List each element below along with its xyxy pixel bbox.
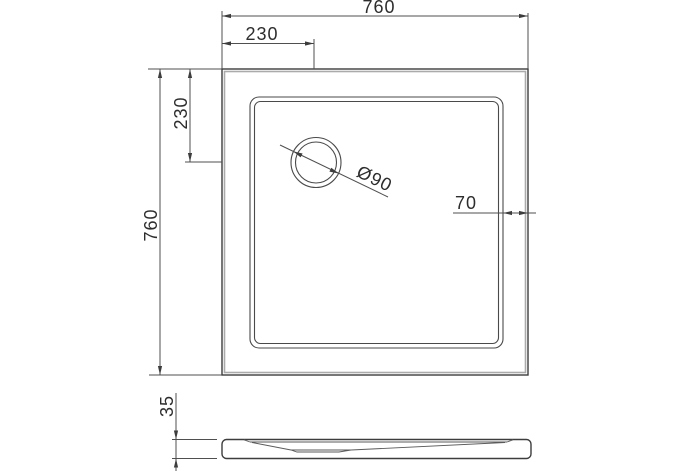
- plan-view: [222, 69, 528, 375]
- dim-label-drain-offset-x: 230: [245, 24, 278, 44]
- arrowhead-top: [188, 69, 192, 78]
- arrowhead-bottom: [188, 153, 192, 162]
- profile-floor-slope-right: [351, 443, 505, 451]
- tray-rim-inner-line: [255, 102, 499, 344]
- shower-tray-technical-drawing: 760 230 760 230: [0, 0, 675, 476]
- dim-tray-depth: 35: [157, 393, 217, 471]
- dim-rim-width: 70: [453, 193, 536, 215]
- dim-label-drain-offset-y: 230: [171, 96, 191, 129]
- dim-top-drain-offset: 230: [222, 24, 314, 69]
- arrowhead-bottom: [174, 459, 178, 468]
- arrowhead-right: [519, 14, 528, 18]
- arrowhead-top: [158, 69, 162, 78]
- arrowhead-left: [503, 211, 512, 215]
- dim-left-drain-offset: 230: [171, 69, 222, 162]
- dim-label-top-width: 760: [362, 0, 395, 17]
- dim-label-tray-depth: 35: [157, 395, 177, 417]
- drawing-canvas: 760 230 760 230: [0, 0, 675, 476]
- arrowhead-right: [519, 211, 528, 215]
- arrowhead-left: [222, 14, 231, 18]
- arrowhead-right: [305, 41, 314, 45]
- profile-drain-recess: [291, 450, 351, 452]
- dim-label-rim-width: 70: [455, 193, 477, 213]
- arrowhead-left: [222, 41, 231, 45]
- profile-floor-slope-left: [252, 443, 291, 451]
- dim-label-left-height: 760: [141, 208, 161, 241]
- arrowhead-bottom: [158, 366, 162, 375]
- tray-outer-edge: [222, 69, 528, 375]
- tray-outer-edge-shadow: [225, 72, 526, 373]
- tray-rim-outer-line: [250, 97, 503, 348]
- side-view: [222, 440, 531, 459]
- arrowhead-top: [174, 431, 178, 440]
